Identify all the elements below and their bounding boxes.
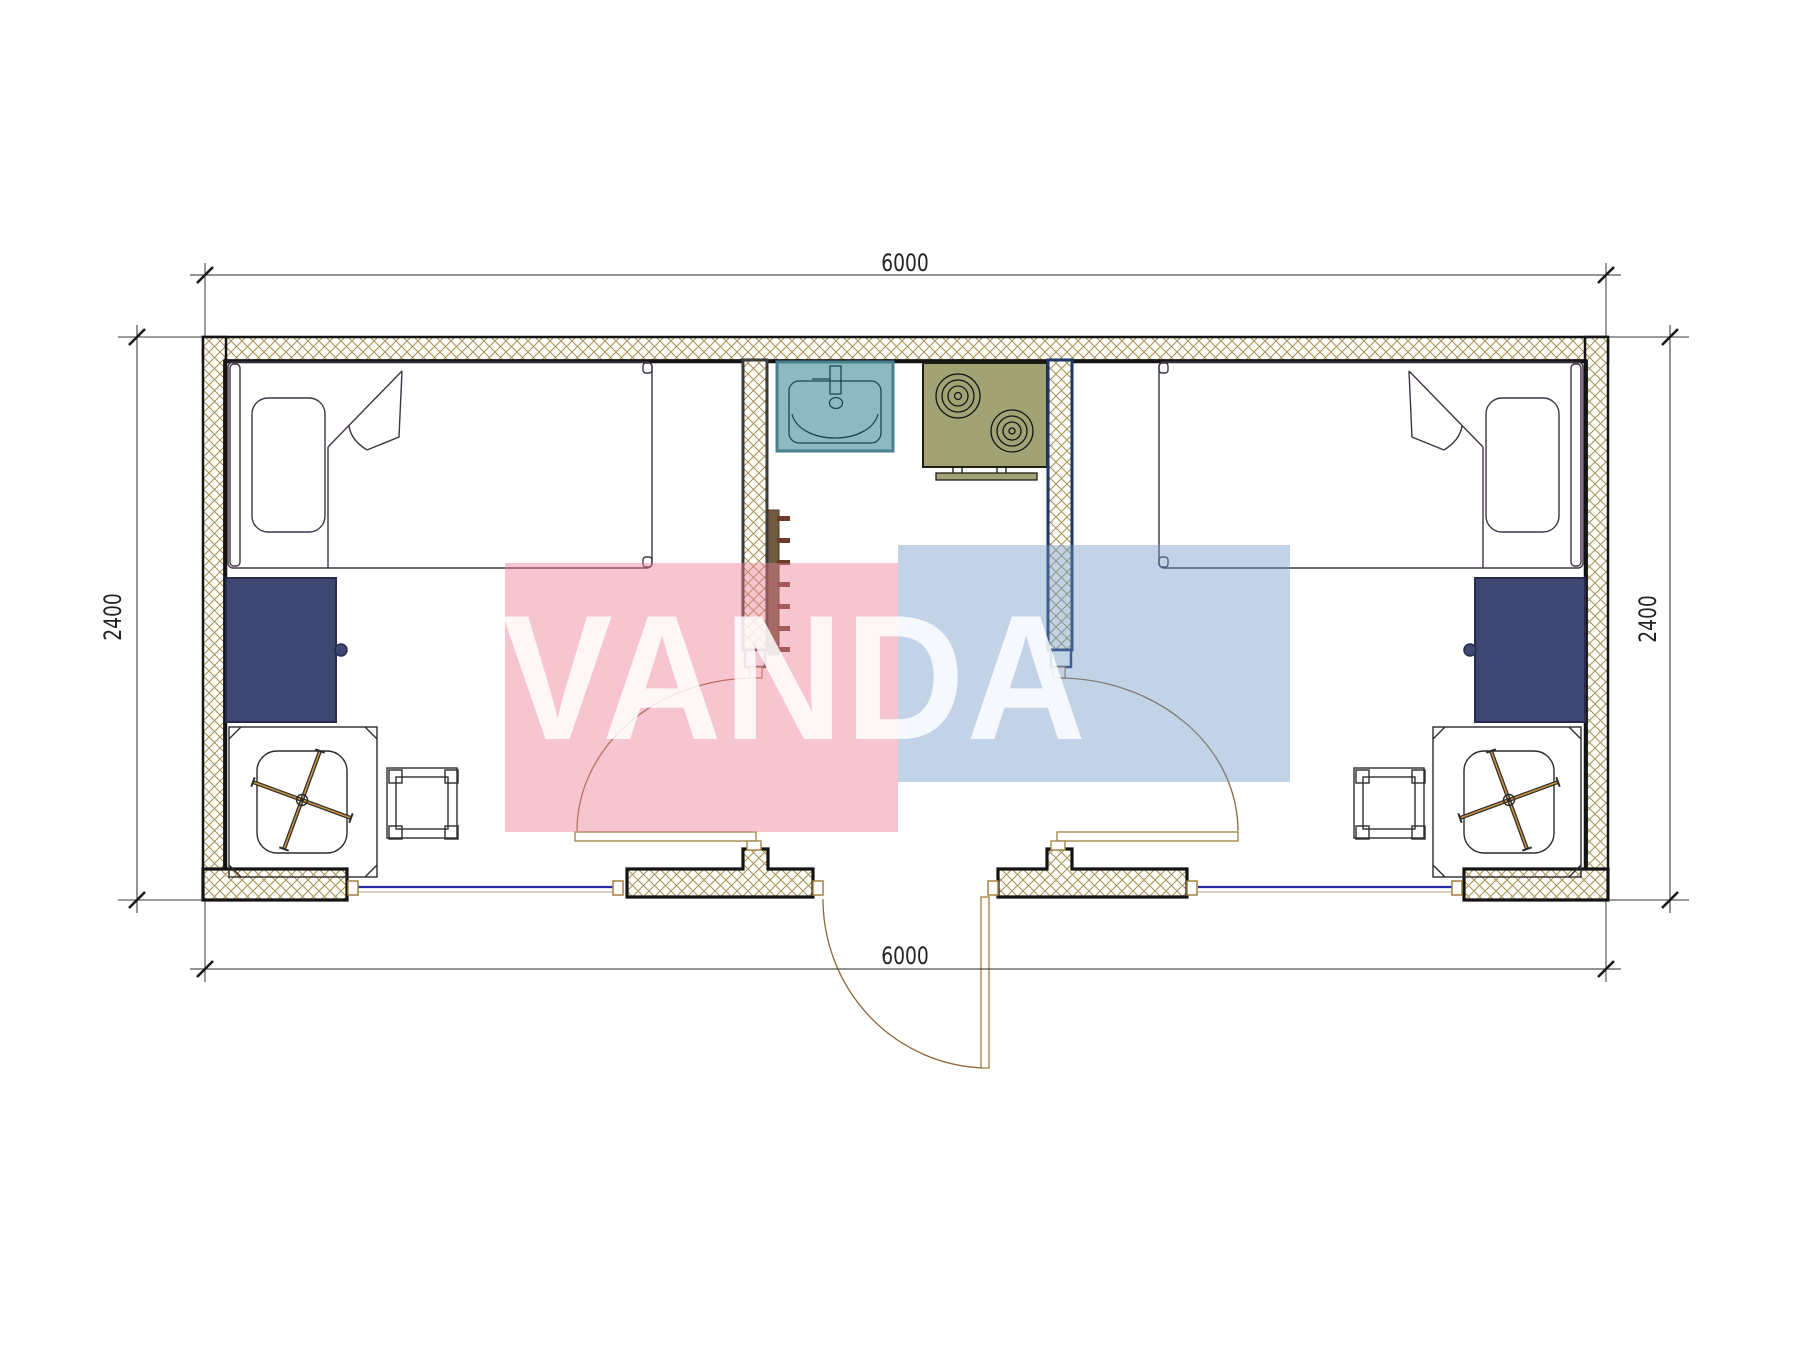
- dimension-right: 2400: [1609, 325, 1689, 913]
- office-chair-right: [1433, 727, 1581, 877]
- desk-left-knob: [335, 644, 347, 656]
- bed-right-headboard: [1571, 364, 1581, 566]
- sink: [777, 362, 893, 451]
- blanket-fold-right: [1409, 371, 1483, 568]
- extension-line: [118, 337, 202, 900]
- bed-left-mattress: [228, 362, 652, 568]
- stove-top: [923, 363, 1047, 467]
- stool-leg: [1412, 826, 1425, 839]
- pillow-right: [1486, 398, 1559, 532]
- door-hinge-plate: [747, 841, 761, 850]
- stool-right-top: [1354, 768, 1424, 838]
- stove: [923, 363, 1047, 480]
- dim-label-top: 6000: [881, 250, 929, 278]
- wall-bottom-right-segment: [998, 849, 1187, 897]
- radiator-rung: [777, 516, 790, 521]
- frame-cap: [1187, 881, 1197, 895]
- frame-cap: [988, 881, 998, 895]
- door-leaf: [575, 832, 756, 841]
- stool-left: [387, 768, 458, 839]
- blanket-fold-left: [328, 371, 402, 568]
- desk-right-knob: [1464, 644, 1476, 656]
- desk-left: [226, 578, 347, 722]
- bed-left: [228, 362, 652, 568]
- wall-right: [1585, 337, 1608, 900]
- dim-label-right: 2400: [1635, 595, 1663, 643]
- bed-right-mattress: [1159, 362, 1583, 568]
- stool-left-frame: [396, 777, 448, 829]
- door-leaf: [1057, 832, 1238, 841]
- frame-cap: [1452, 881, 1462, 895]
- wall-left: [203, 337, 226, 900]
- dim-label-bottom: 6000: [881, 943, 929, 971]
- bed-right: [1159, 362, 1583, 568]
- desk-right-top: [1475, 578, 1585, 722]
- door-hinge-plate: [1051, 841, 1065, 850]
- stool-right: [1354, 768, 1425, 839]
- desk-right: [1464, 578, 1585, 722]
- frame-cap: [613, 881, 623, 895]
- radiator-rung: [777, 538, 790, 543]
- door-swing-arc: [823, 899, 985, 1068]
- windows: [348, 881, 1462, 895]
- stove-shelf: [936, 473, 1037, 480]
- bed-left-headboard: [230, 364, 240, 566]
- entrance-door: [823, 897, 989, 1068]
- pillow-left: [252, 398, 325, 532]
- watermark-text: VANDA: [502, 578, 1088, 777]
- wall-bottom-corner-left: [203, 869, 347, 900]
- frame-cap: [348, 881, 358, 895]
- dimension-top: 6000: [190, 250, 1621, 336]
- chair-right-star-base: [1458, 749, 1559, 850]
- frame-cap: [813, 881, 823, 895]
- wall-top: [203, 337, 1608, 362]
- stool-left-top: [387, 768, 457, 838]
- wall-bottom-left-segment: [627, 849, 813, 897]
- wall-bottom-corner-right: [1464, 869, 1608, 900]
- dim-label-left: 2400: [100, 593, 128, 641]
- floor-plan-canvas: 6000 6000 2400 2400 VANDA: [0, 0, 1800, 1350]
- office-chair-left: [229, 727, 377, 877]
- dimension-bottom: 6000: [190, 901, 1621, 982]
- stool-leg: [445, 826, 458, 839]
- door-leaf: [981, 897, 989, 1068]
- stool-right-frame: [1363, 777, 1415, 829]
- chair-left-star-base: [251, 749, 352, 850]
- desk-left-top: [226, 578, 336, 722]
- dimension-left: 2400: [100, 325, 202, 913]
- watermark: VANDA: [502, 545, 1290, 832]
